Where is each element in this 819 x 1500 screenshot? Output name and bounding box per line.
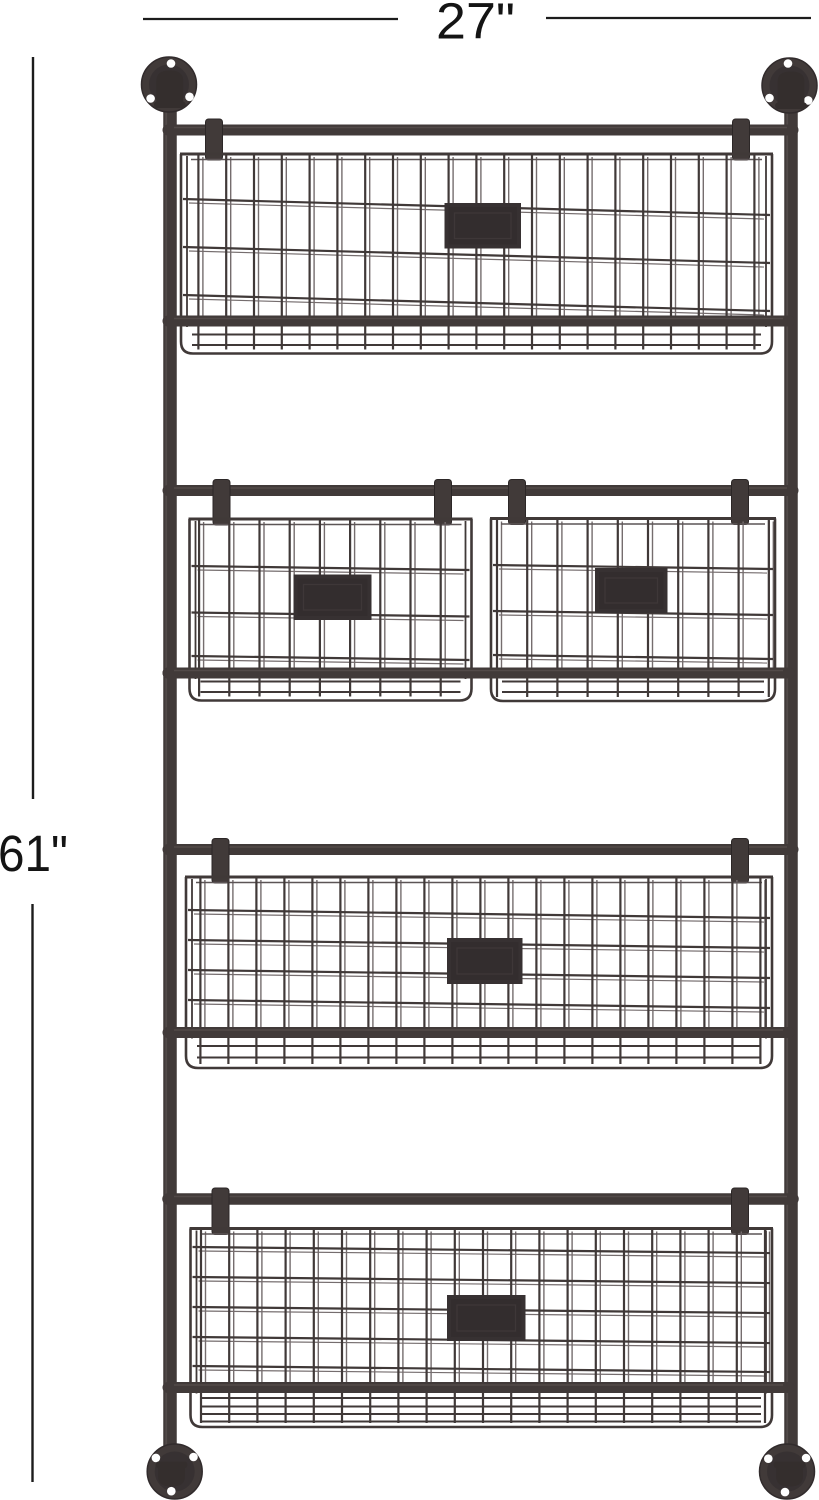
svg-text:61": 61" xyxy=(0,825,68,882)
svg-text:27": 27" xyxy=(436,0,515,50)
